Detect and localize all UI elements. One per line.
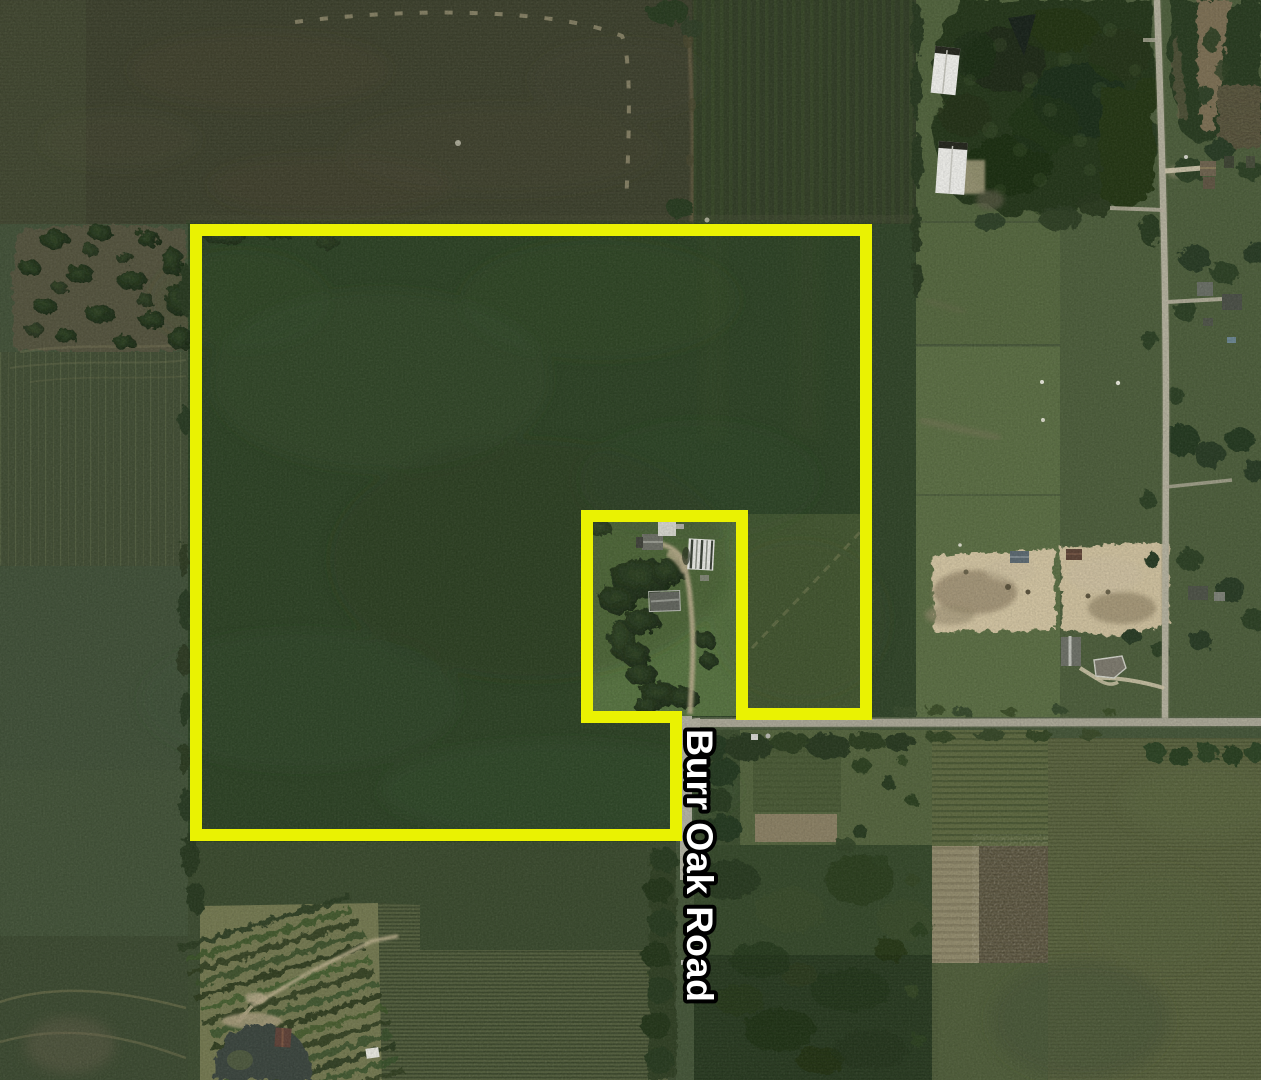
svg-text:Burr Oak Road: Burr Oak Road [679, 729, 721, 1003]
